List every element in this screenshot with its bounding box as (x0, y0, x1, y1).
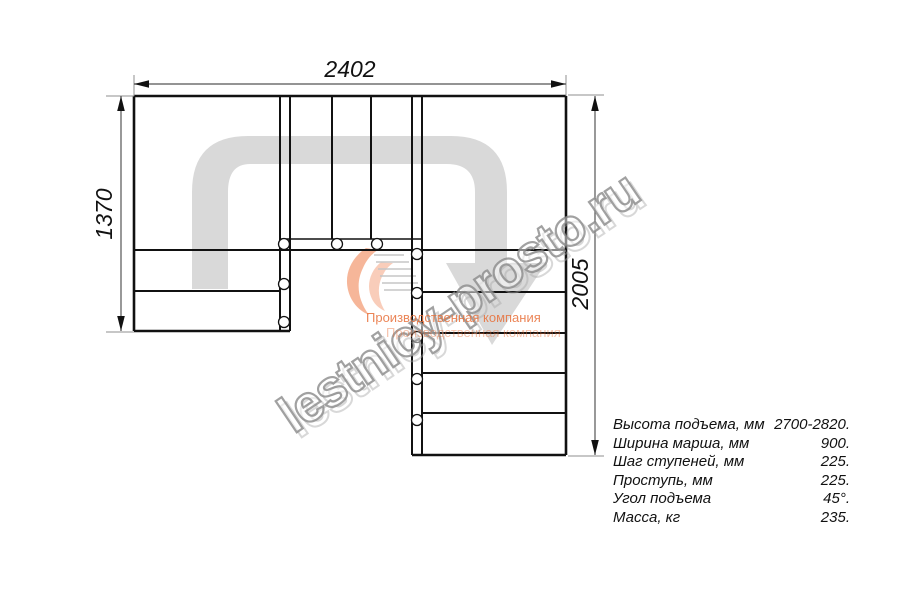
baluster-circle (279, 239, 290, 250)
stair-plan-canvas: 2402 1370 2005 lestnicy-prosto.ru lestni… (0, 0, 900, 600)
spec-row: Проступь, мм 225. (613, 472, 850, 491)
spec-value: 225. (821, 472, 850, 491)
baluster-circle (412, 288, 423, 299)
baluster-circle (332, 239, 343, 250)
spec-row: Угол подъема 45°. (613, 490, 850, 509)
spec-label: Шаг ступеней, мм (613, 453, 744, 472)
spec-value: 2700-2820. (774, 416, 850, 435)
spec-label: Ширина марша, мм (613, 435, 749, 454)
dimension-annotations: 2402 1370 2005 (91, 56, 604, 456)
spec-row: Ширина марша, мм 900. (613, 435, 850, 454)
spec-value: 235. (821, 509, 850, 528)
spec-label: Проступь, мм (613, 472, 713, 491)
spec-row: Высота подъема, мм 2700-2820. (613, 416, 850, 435)
baluster-circle (412, 415, 423, 426)
spec-table: Высота подъема, мм 2700-2820. Ширина мар… (613, 416, 850, 528)
spec-value: 900. (821, 435, 850, 454)
baluster-circle (279, 279, 290, 290)
spec-row: Шаг ступеней, мм 225. (613, 453, 850, 472)
spec-label: Угол подъема (613, 490, 711, 509)
company-logo (347, 248, 420, 315)
dimension-width-label: 2402 (323, 56, 375, 82)
spec-value: 45°. (823, 490, 850, 509)
spec-label: Высота подъема, мм (613, 416, 765, 435)
baluster-circle (412, 249, 423, 260)
baluster-circle (412, 332, 423, 343)
baluster-circle (372, 239, 383, 250)
spec-label: Масса, кг (613, 509, 680, 528)
baluster-circle (412, 374, 423, 385)
dimension-left-height-label: 1370 (91, 188, 117, 239)
spec-value: 225. (821, 453, 850, 472)
dimension-right-height-label: 2005 (567, 258, 593, 310)
route-arrow (192, 136, 546, 345)
spec-row: Масса, кг 235. (613, 509, 850, 528)
baluster-circle (279, 317, 290, 328)
